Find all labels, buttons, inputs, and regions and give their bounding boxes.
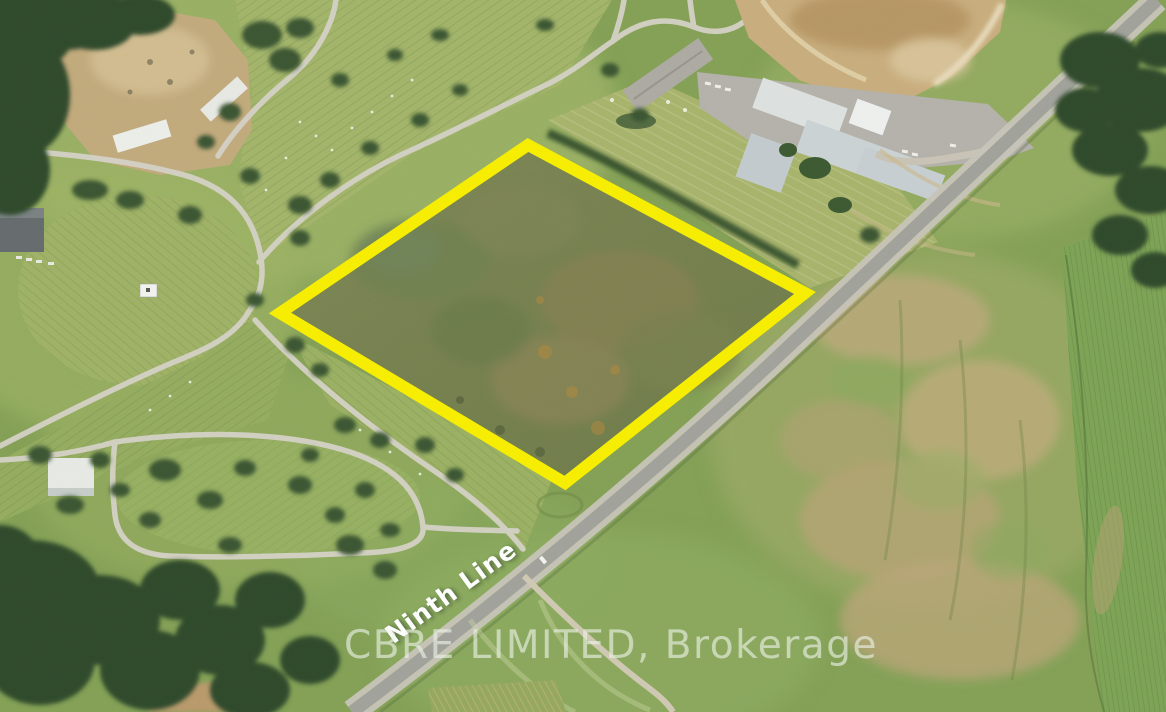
aerial-photo-canvas: Ninth Line Ninth Line CBRE LIMITED, Brok… xyxy=(0,0,1166,712)
aerial-photo: Ninth Line Ninth Line CBRE LIMITED, Brok… xyxy=(0,0,1166,712)
photo-grain xyxy=(0,0,1166,712)
